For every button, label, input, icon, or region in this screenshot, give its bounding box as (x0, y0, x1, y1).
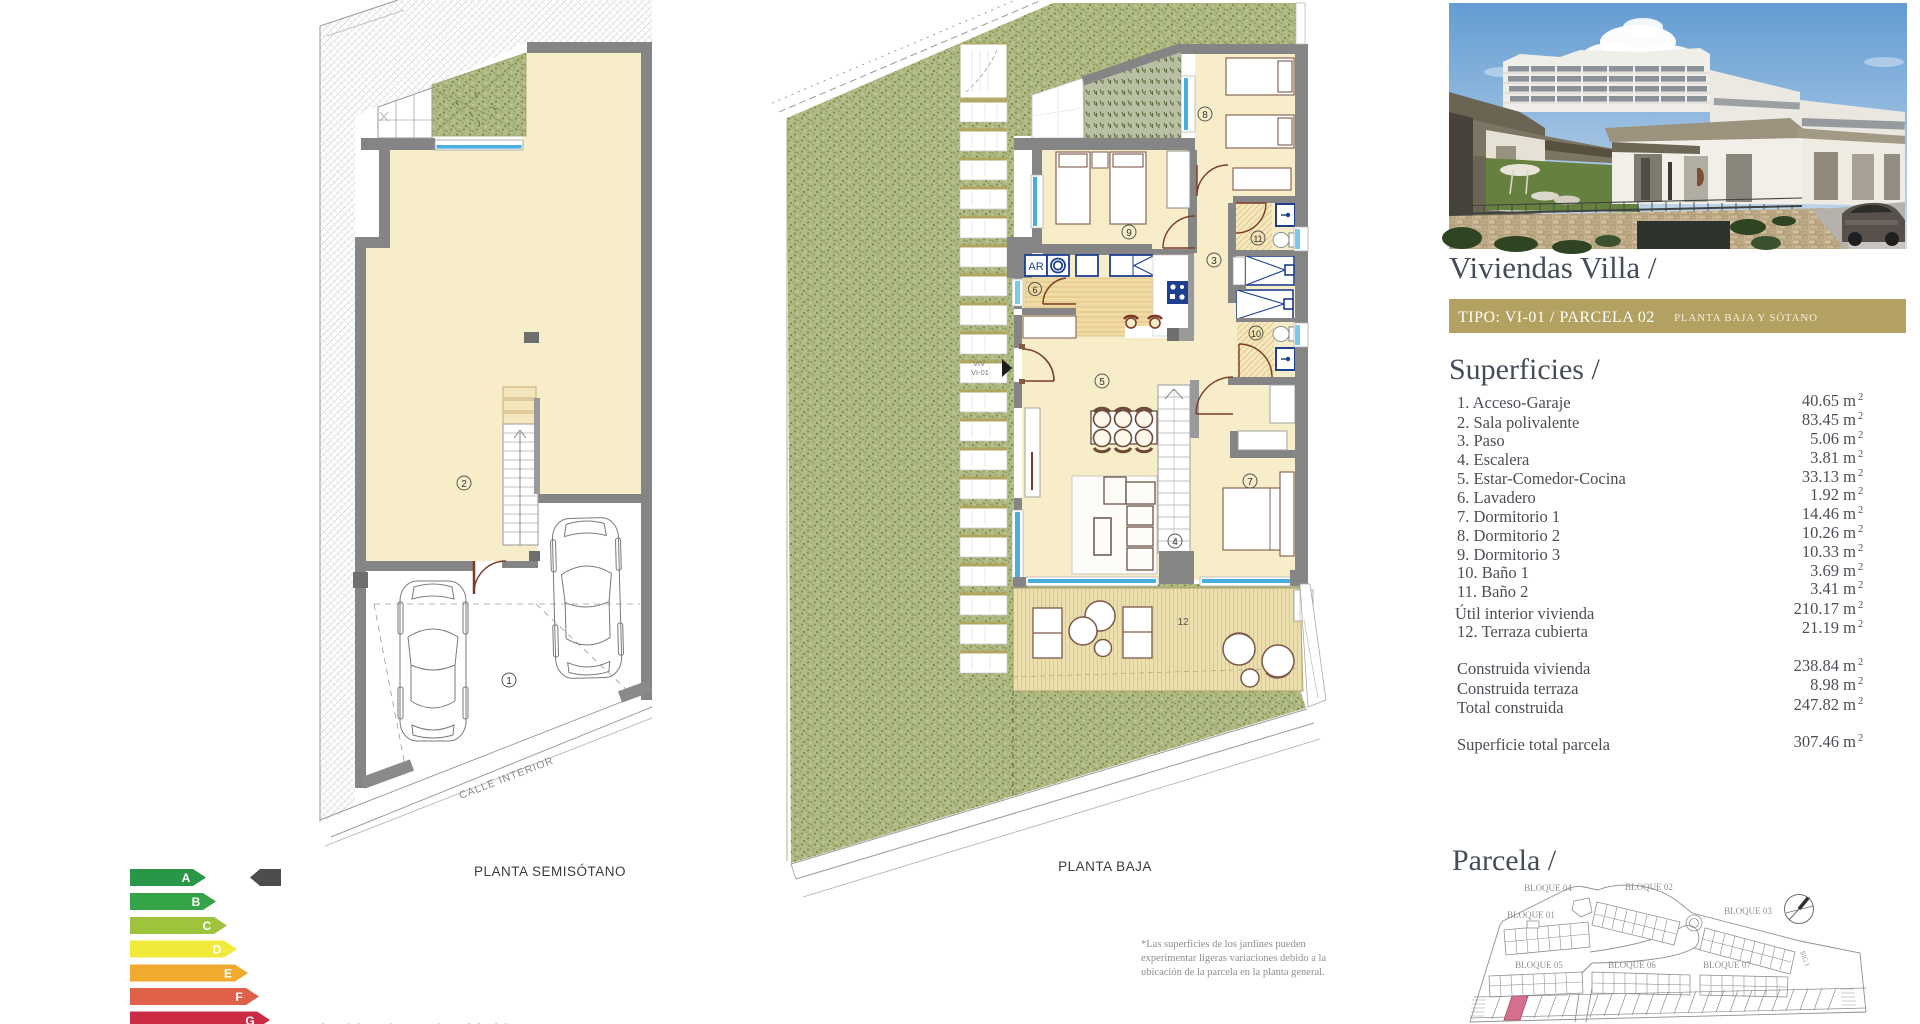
svg-text:2. Sala polivalente: 2. Sala polivalente (1457, 413, 1579, 432)
svg-text:experimentar ligeras variacion: experimentar ligeras variaciones debido … (1141, 953, 1326, 964)
svg-text:8: 8 (1202, 110, 1208, 121)
svg-text:*Las superficies de los jardin: *Las superficies de los jardines pueden (1141, 939, 1306, 950)
svg-text:Viviendas Villa /: Viviendas Villa / (1449, 250, 1657, 285)
svg-text:83.45 m: 83.45 m (1802, 410, 1856, 429)
svg-text:Construida vivienda: Construida vivienda (1457, 659, 1591, 678)
svg-text:3: 3 (1211, 256, 1217, 267)
svg-text:11: 11 (1253, 234, 1262, 244)
svg-text:VIV: VIV (973, 359, 985, 368)
svg-text:33.13 m: 33.13 m (1802, 467, 1856, 486)
svg-text:247.82 m: 247.82 m (1794, 695, 1857, 714)
svg-text:6. Lavadero: 6. Lavadero (1457, 488, 1536, 507)
svg-text:B: B (192, 895, 201, 909)
svg-text:TIPO: VI-01 / PARCELA 02: TIPO: VI-01 / PARCELA 02 (1458, 309, 1655, 326)
svg-text:2: 2 (1858, 449, 1863, 460)
svg-text:12: 12 (1177, 617, 1189, 628)
svg-text:D: D (213, 943, 222, 957)
svg-text:40.65 m: 40.65 m (1802, 391, 1856, 410)
svg-text:BLOQUE 03: BLOQUE 03 (1724, 906, 1772, 916)
svg-text:Total construida: Total construida (1457, 698, 1564, 717)
svg-text:4. Escalera: 4. Escalera (1457, 450, 1530, 469)
svg-text:8. Dormitorio 2: 8. Dormitorio 2 (1457, 526, 1560, 545)
svg-text:2: 2 (1858, 657, 1863, 668)
svg-text:7: 7 (1247, 477, 1253, 488)
svg-text:1. Acceso-Garaje: 1. Acceso-Garaje (1457, 393, 1571, 412)
svg-text:11. Baño 2: 11. Baño 2 (1457, 582, 1528, 601)
svg-text:E: E (224, 967, 232, 981)
svg-text:PLANTA BAJA Y SÓTANO: PLANTA BAJA Y SÓTANO (1674, 312, 1818, 324)
svg-text:9: 9 (1126, 228, 1132, 239)
svg-text:2: 2 (1858, 600, 1863, 611)
svg-text:14.46 m: 14.46 m (1802, 504, 1856, 523)
svg-text:2: 2 (1858, 468, 1863, 479)
svg-text:PLANTA SEMISÓTANO: PLANTA SEMISÓTANO (474, 864, 626, 879)
svg-text:2: 2 (1858, 430, 1863, 441)
svg-text:9. Dormitorio 3: 9. Dormitorio 3 (1457, 545, 1560, 564)
svg-text:PLANTA BAJA: PLANTA BAJA (1058, 859, 1152, 874)
svg-text:10. Baño 1: 10. Baño 1 (1457, 563, 1529, 582)
svg-text:2: 2 (1858, 543, 1863, 554)
svg-text:3.41 m: 3.41 m (1810, 579, 1856, 598)
svg-text:BLOQUE 01: BLOQUE 01 (1507, 910, 1555, 920)
svg-text:3.69 m: 3.69 m (1810, 561, 1856, 580)
svg-text:AR: AR (1028, 261, 1043, 273)
svg-text:G: G (245, 1014, 254, 1024)
svg-text:2: 2 (1858, 676, 1863, 687)
svg-text:A: A (182, 871, 191, 885)
svg-text:12. Terraza cubierta: 12. Terraza cubierta (1457, 622, 1589, 641)
svg-text:8.98 m: 8.98 m (1810, 675, 1856, 694)
svg-text:21.19 m: 21.19 m (1802, 618, 1856, 637)
svg-text:5. Estar-Comedor-Cocina: 5. Estar-Comedor-Cocina (1457, 469, 1627, 488)
svg-text:2: 2 (1858, 486, 1863, 497)
svg-text:CALLE INTERIOR: CALLE INTERIOR (458, 755, 556, 802)
svg-text:2: 2 (1858, 392, 1863, 403)
svg-text:Superficie total parcela: Superficie total parcela (1457, 735, 1611, 754)
svg-text:SIG I: SIG I (1798, 950, 1811, 968)
svg-text:4: 4 (1172, 537, 1178, 548)
svg-text:BLOQUE 07: BLOQUE 07 (1703, 960, 1751, 970)
svg-text:5.06 m: 5.06 m (1810, 429, 1856, 448)
svg-text:BLOQUE 04: BLOQUE 04 (1524, 883, 1572, 893)
svg-text:2: 2 (1858, 505, 1863, 516)
svg-text:BLOQUE 06: BLOQUE 06 (1608, 960, 1656, 970)
svg-text:7. Dormitorio 1: 7. Dormitorio 1 (1457, 507, 1560, 526)
svg-text:2: 2 (1858, 580, 1863, 591)
svg-text:3.81 m: 3.81 m (1810, 448, 1856, 467)
svg-text:ubicación de la parcela en la: ubicación de la parcela en la planta gen… (1141, 967, 1325, 978)
svg-text:6: 6 (1032, 285, 1037, 295)
svg-text:238.84 m: 238.84 m (1794, 656, 1857, 675)
svg-text:10.33 m: 10.33 m (1802, 542, 1856, 561)
svg-text:2: 2 (1858, 524, 1863, 535)
svg-text:Superficies /: Superficies / (1449, 353, 1600, 386)
svg-text:2: 2 (461, 479, 467, 490)
svg-text:3. Paso: 3. Paso (1457, 431, 1505, 450)
svg-text:1: 1 (506, 676, 512, 687)
svg-text:F: F (235, 990, 242, 1004)
svg-text:2: 2 (1858, 562, 1863, 573)
svg-text:307.46 m: 307.46 m (1794, 732, 1857, 751)
svg-text:Útil interior vivienda: Útil interior vivienda (1455, 604, 1595, 623)
svg-text:Construida terraza: Construida terraza (1457, 679, 1579, 698)
svg-text:1.92 m: 1.92 m (1810, 485, 1856, 504)
svg-text:10.26 m: 10.26 m (1802, 523, 1856, 542)
svg-text:2: 2 (1858, 696, 1863, 707)
svg-text:210.17 m: 210.17 m (1794, 599, 1857, 618)
svg-text:VI-01: VI-01 (971, 368, 989, 377)
svg-text:BLOQUE 05: BLOQUE 05 (1515, 960, 1563, 970)
svg-text:Parcela /: Parcela / (1452, 844, 1557, 877)
svg-text:BLOQUE 02: BLOQUE 02 (1625, 882, 1673, 892)
svg-text:10: 10 (1251, 329, 1261, 339)
svg-text:2: 2 (1858, 411, 1863, 422)
svg-text:2: 2 (1858, 619, 1863, 630)
svg-text:2: 2 (1858, 733, 1863, 744)
svg-text:5: 5 (1099, 377, 1105, 388)
svg-text:C: C (203, 919, 212, 933)
